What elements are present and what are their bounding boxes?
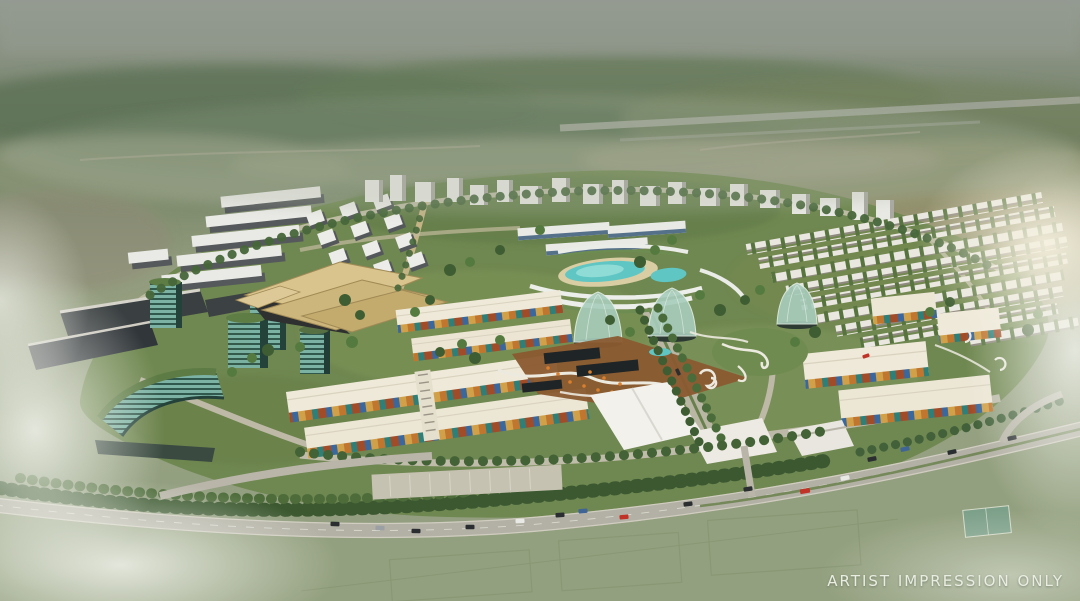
aerial-rendering [0, 0, 1080, 601]
artist-impression-canvas: ARTIST IMPRESSION ONLY [0, 0, 1080, 601]
watermark-text: ARTIST IMPRESSION ONLY [827, 572, 1064, 590]
